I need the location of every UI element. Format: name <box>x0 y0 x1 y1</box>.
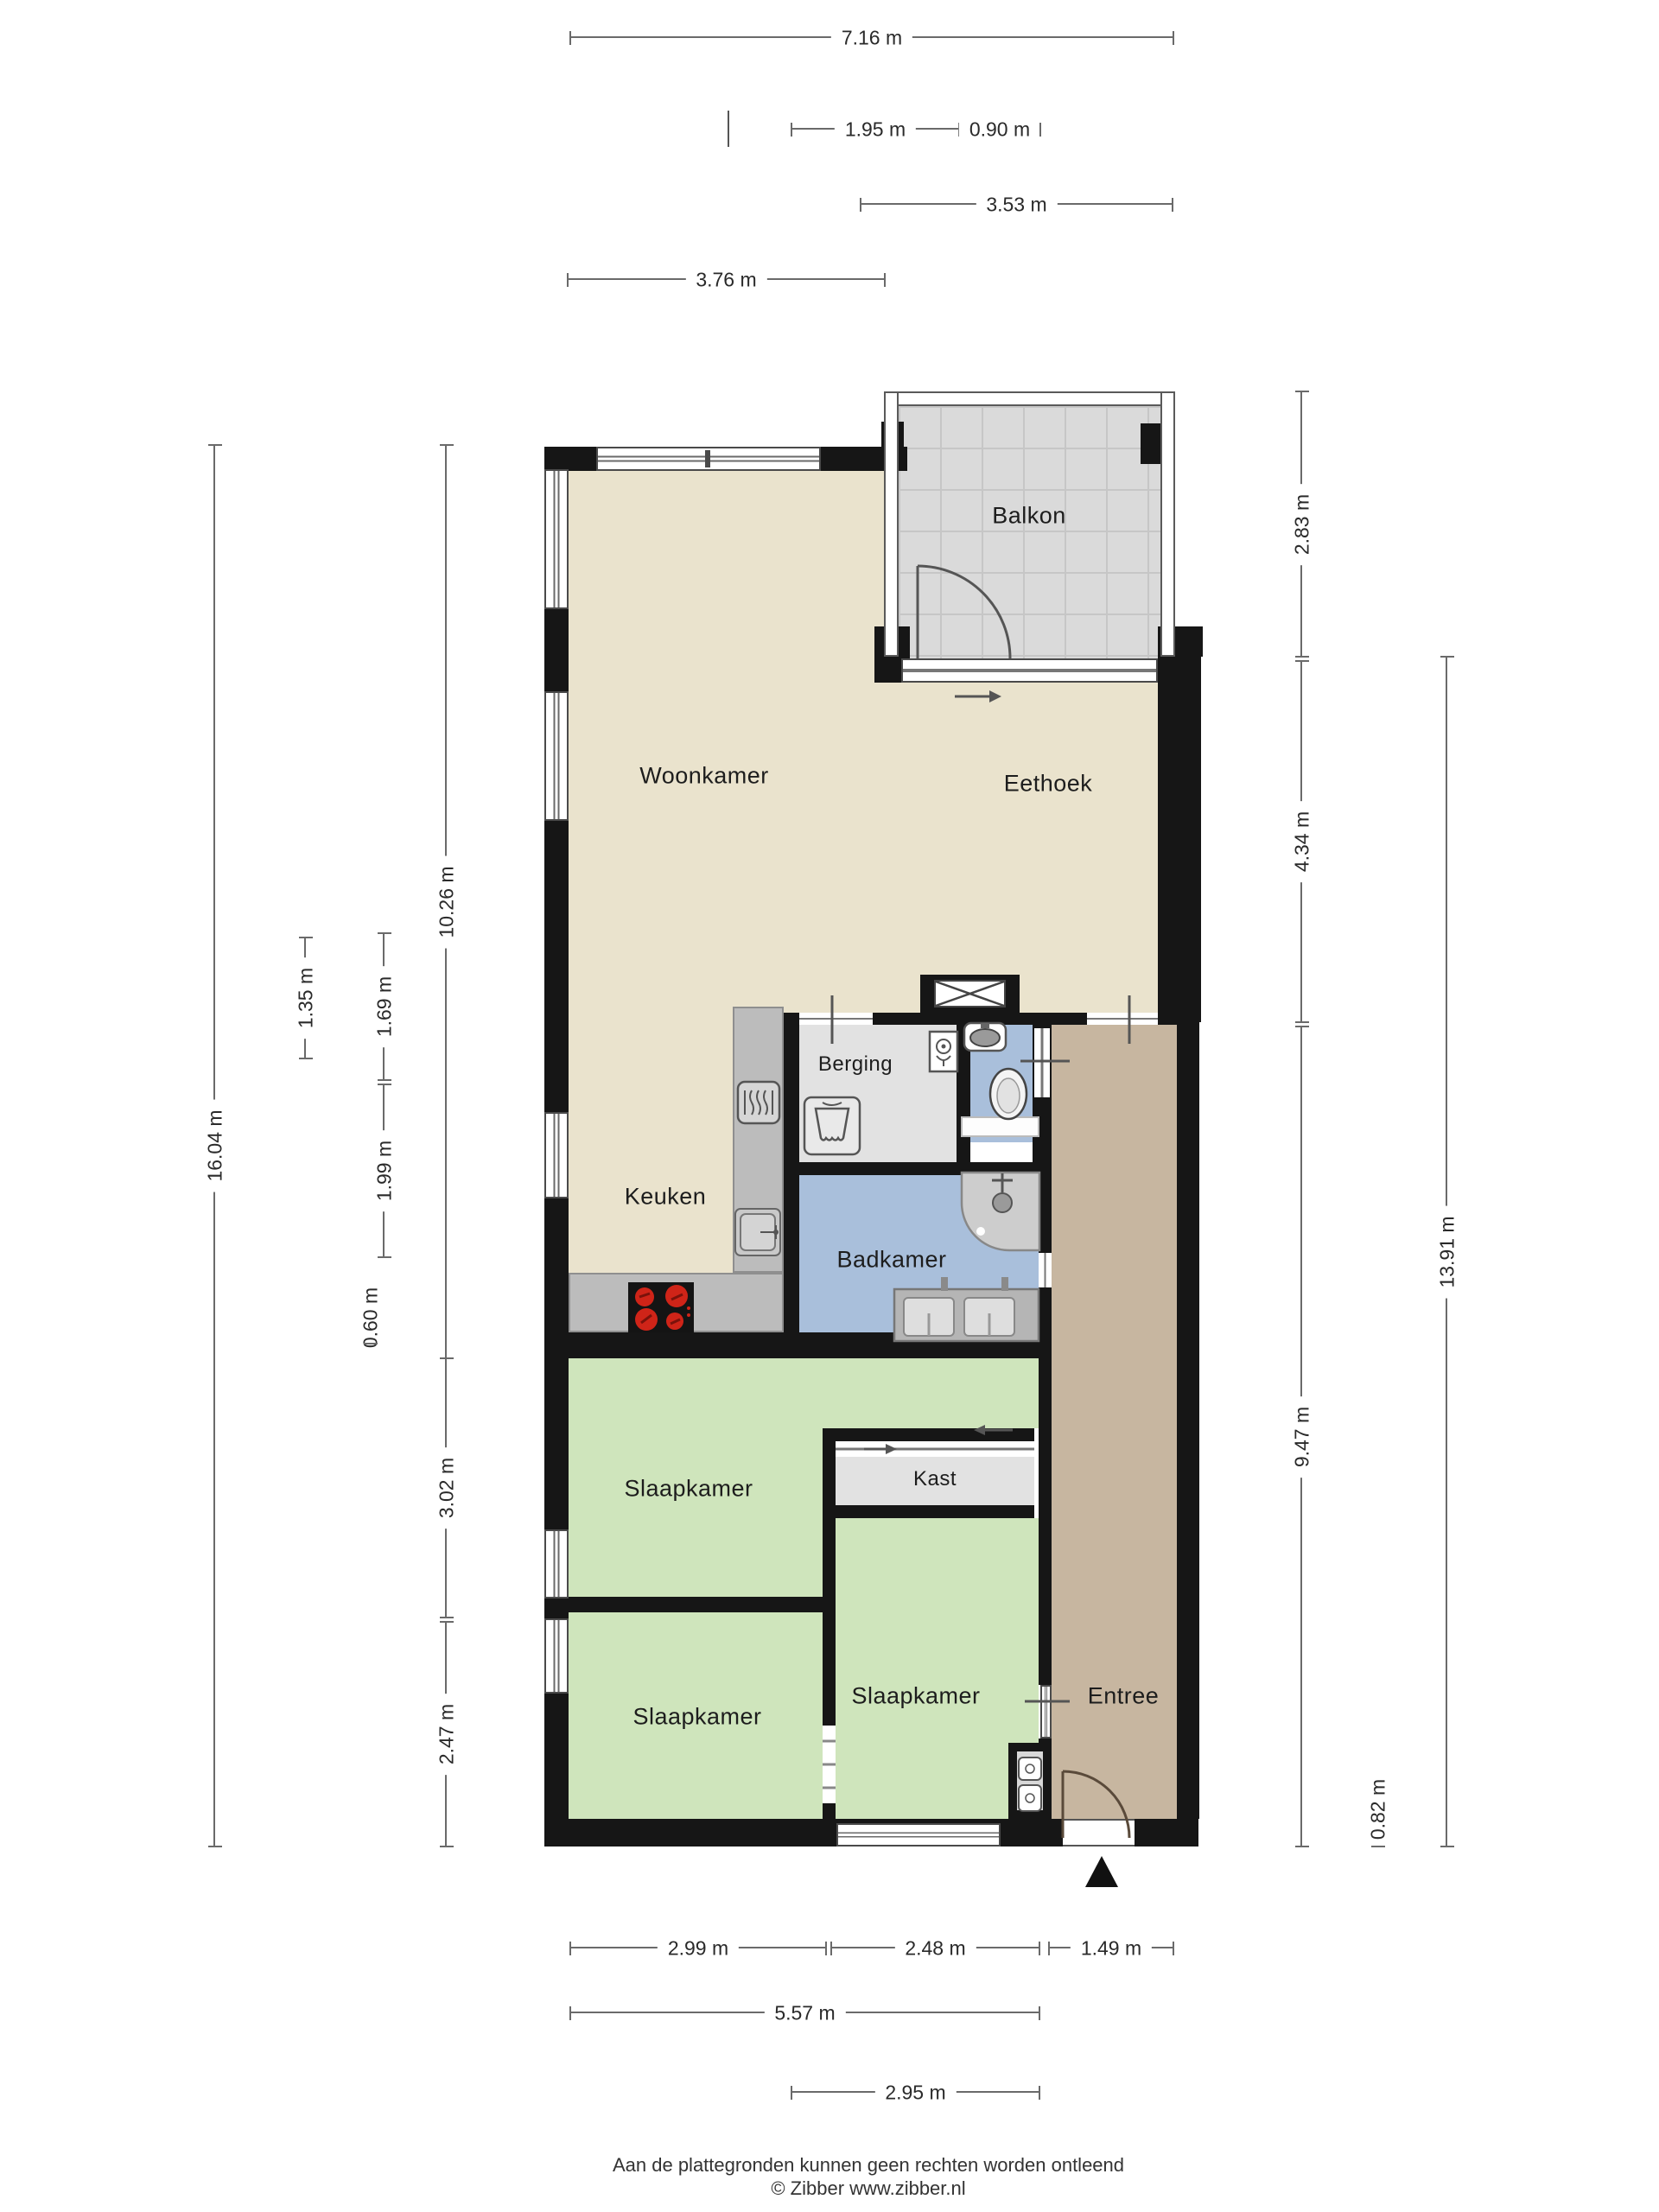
room-label-woonkamer: Woonkamer <box>639 763 769 790</box>
dim-right-1391: 13.91 m <box>1446 657 1447 1847</box>
room-label-slaapkamer-3: Slaapkamer <box>632 1704 761 1731</box>
room-label-eethoek: Eethoek <box>1004 771 1093 798</box>
badkamer-door <box>1039 1253 1052 1287</box>
room-label-berging: Berging <box>818 1052 893 1077</box>
room-label-slaapkamer-1: Slaapkamer <box>624 1476 753 1503</box>
woonkamer-floor <box>569 471 884 1013</box>
wall-badkamer-bottom <box>569 1332 1052 1358</box>
room-label-balkon: Balkon <box>992 503 1066 530</box>
balkon-rail-top <box>884 391 1175 406</box>
footer-copyright: © Zibber www.zibber.nl <box>415 2177 1322 2200</box>
wall-under-berging <box>780 1162 1039 1175</box>
balkon-floor <box>899 406 1160 658</box>
kast-sliding-rail <box>836 1441 1034 1457</box>
bedroom-strip-floor <box>569 1358 1039 1428</box>
dim-top-353: 3.53 m <box>861 203 1173 205</box>
dim-left-247: 2.47 m <box>445 1622 447 1847</box>
north-arrow-icon <box>1085 1856 1118 1887</box>
dim-right-082: 0.82 m <box>1376 1772 1378 1847</box>
dim-bottom-295: 2.95 m <box>791 2091 1039 2093</box>
berging-floor <box>799 1025 957 1162</box>
room-label-entree: Entree <box>1088 1683 1160 1710</box>
dim-bottom-149: 1.49 m <box>1049 1947 1173 1948</box>
toilet-door <box>1034 1028 1050 1097</box>
balkon-rail-left <box>884 391 899 657</box>
window-left-3 <box>544 1112 569 1198</box>
dim-top-716: 7.16 m <box>570 36 1173 38</box>
window-left-2 <box>544 691 569 821</box>
room-label-keuken: Keuken <box>625 1184 707 1211</box>
opening-berging-door <box>799 1013 873 1025</box>
dim-left-302: 3.02 m <box>445 1358 447 1618</box>
room-label-badkamer: Badkamer <box>836 1247 946 1274</box>
glass-panel-entree <box>1040 1685 1052 1738</box>
balkon-rail-right <box>1160 391 1175 657</box>
kitchen-counter-vertical <box>733 1007 784 1273</box>
front-door-opening <box>1063 1819 1135 1847</box>
dim-bottom-248: 2.48 m <box>831 1947 1039 1948</box>
dim-top-376: 3.76 m <box>568 278 885 280</box>
dim-bottom-557: 5.57 m <box>570 2012 1039 2013</box>
toilet-floor <box>970 1025 1033 1142</box>
balkon-sliding-window <box>901 658 1158 683</box>
dim-left-199: 1.99 m <box>383 1084 385 1257</box>
room-label-kast: Kast <box>913 1467 957 1491</box>
closet-interior <box>1017 1751 1043 1810</box>
footer-disclaimer: Aan de plattegronden kunnen geen rechten… <box>415 2153 1322 2177</box>
kitchen-counter-bottom <box>569 1273 784 1332</box>
shaft-box <box>934 980 1006 1007</box>
window-left-5 <box>544 1618 569 1694</box>
wall-kast-bottom <box>823 1505 1034 1518</box>
keuken-floor <box>569 1013 733 1273</box>
eethoek-floor <box>884 658 1158 1013</box>
wall-right-upper <box>1158 657 1201 1022</box>
window-top-mullion <box>705 450 710 467</box>
wall-right-lower <box>1177 1022 1199 1819</box>
window-left-4 <box>544 1529 569 1599</box>
wall-bedroom-divider-h <box>569 1597 823 1612</box>
dim-left-1026: 10.26 m <box>445 445 447 1358</box>
dim-top-195: 1.95 m <box>791 128 959 130</box>
wall-berging-toilet <box>957 1025 970 1162</box>
dim-bottom-299: 2.99 m <box>570 1947 826 1948</box>
opening-entree <box>1087 1013 1158 1025</box>
dim-right-283: 2.83 m <box>1300 391 1302 657</box>
footer: Aan de plattegronden kunnen geen rechten… <box>415 2153 1322 2200</box>
room-label-slaapkamer-2: Slaapkamer <box>851 1683 980 1710</box>
dim-right-434: 4.34 m <box>1300 661 1302 1022</box>
bedroom-door-gap <box>823 1726 836 1803</box>
dim-right-947: 9.47 m <box>1300 1027 1302 1847</box>
dim-left-060: 0.60 m <box>369 1292 371 1344</box>
dim-left-135: 1.35 m <box>304 938 306 1058</box>
wall-kast-top <box>836 1428 1034 1441</box>
dim-left-169: 1.69 m <box>383 933 385 1080</box>
slaapkamer1-floor <box>569 1428 823 1597</box>
dim-left-1604: 16.04 m <box>213 445 215 1847</box>
dim-top-090: 0.90 m <box>959 128 1040 130</box>
floorplan-canvas: Balkon Woonkamer Eethoek Berging Keuken … <box>0 0 1659 2212</box>
window-bottom-bedroom <box>836 1823 1001 1847</box>
window-left-1 <box>544 469 569 609</box>
